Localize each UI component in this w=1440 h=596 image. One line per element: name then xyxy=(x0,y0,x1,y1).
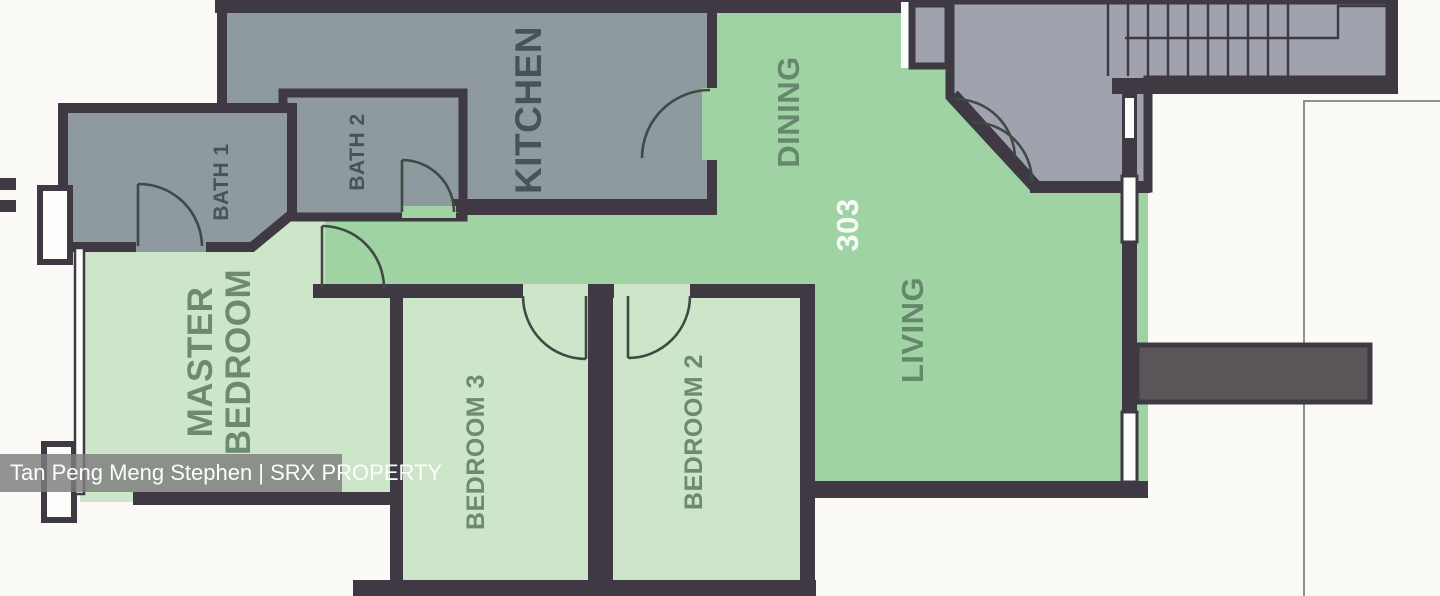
bath2-label: BATH 2 xyxy=(346,113,369,190)
unit-number-label: 303 xyxy=(830,198,865,251)
bedroom3-room xyxy=(398,292,590,584)
living-window-upper xyxy=(1122,176,1137,242)
living-window-top xyxy=(1124,97,1135,139)
living-label: LIVING xyxy=(895,277,930,383)
bath2-door-opening xyxy=(402,206,456,218)
bath2-room xyxy=(283,93,463,217)
external-ledge xyxy=(1137,345,1370,402)
bath1-door-opening xyxy=(136,240,206,252)
master-bedroom-label-line2: BEDROOM xyxy=(219,269,258,455)
bath1-window xyxy=(40,188,70,262)
floorplan-drawing: KITCHEN BATH 1 BATH 2 DINING 303 LIVING … xyxy=(0,0,1440,596)
bath1-room xyxy=(63,108,292,247)
bedroom2-label: BEDROOM 2 xyxy=(680,354,708,510)
living-window-lower xyxy=(1122,412,1137,482)
bath1-label: BATH 1 xyxy=(210,143,233,220)
bedroom3-door-opening xyxy=(523,284,588,298)
kitchen-label: KITCHEN xyxy=(508,26,549,194)
bedroom3-label: BEDROOM 3 xyxy=(462,374,490,530)
kitchen-door-opening xyxy=(702,88,717,160)
master-bedroom-label-line1: MASTER xyxy=(181,287,220,438)
floorplan-canvas: KITCHEN BATH 1 BATH 2 DINING 303 LIVING … xyxy=(0,0,1440,596)
dining-label: DINING xyxy=(771,56,806,168)
agent-watermark: Tan Peng Meng Stephen | SRX PROPERTY xyxy=(0,454,342,492)
entrance-pillar xyxy=(912,4,948,66)
bedroom2-door-opening xyxy=(614,284,690,298)
